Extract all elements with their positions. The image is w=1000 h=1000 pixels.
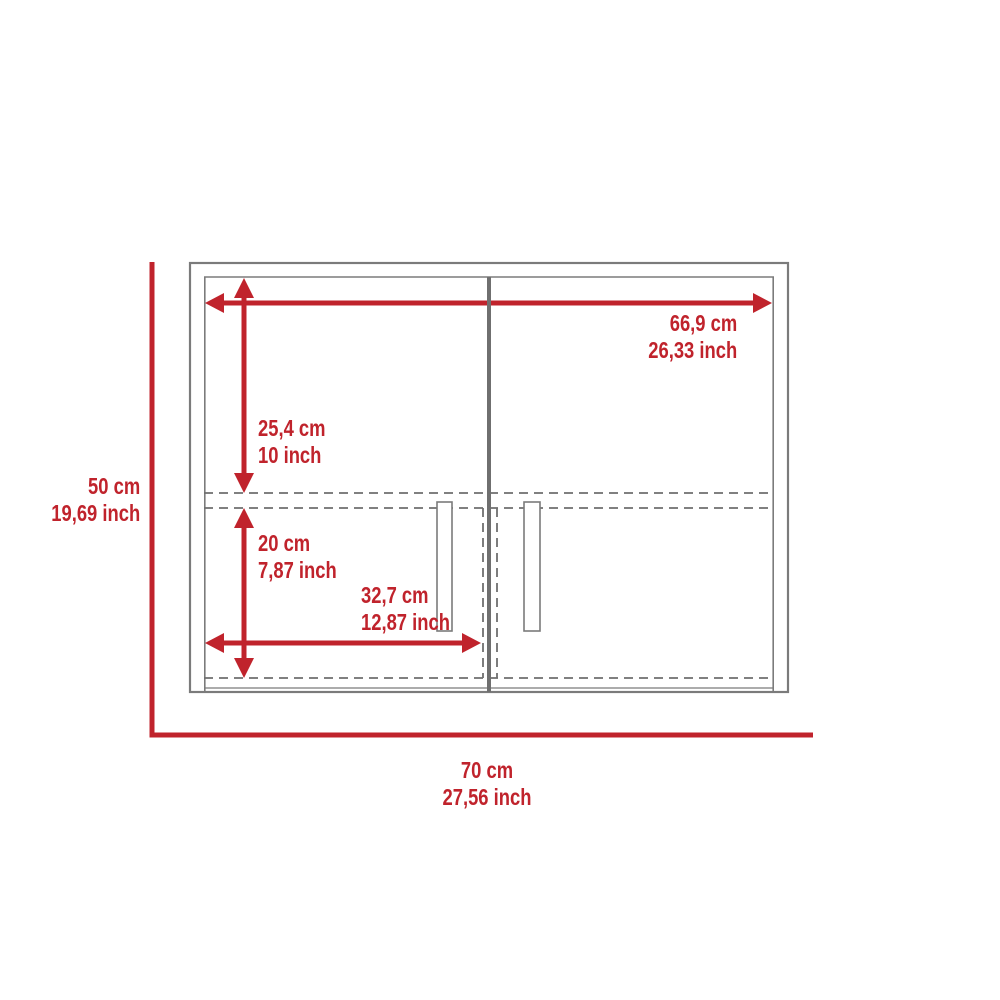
arrowhead-up	[234, 508, 254, 528]
dim-overall-width-inch: 27,56 inch	[367, 784, 607, 811]
dim-interior-width-inch: 26,33 inch	[648, 337, 737, 364]
dim-lower-section-inch: 7,87 inch	[258, 557, 337, 584]
dim-label-overall-width: 70 cm 27,56 inch	[367, 757, 607, 811]
dim-upper-section-inch: 10 inch	[258, 442, 326, 469]
dim-label-overall-height: 50 cm 19,69 inch	[51, 473, 140, 527]
dim-door-width-inch: 12,87 inch	[361, 609, 450, 636]
arrowhead-left	[205, 633, 224, 653]
dim-door-width-cm: 32,7 cm	[361, 582, 450, 609]
dim-label-door-width: 32,7 cm 12,87 inch	[361, 582, 450, 636]
right-door-handle	[524, 502, 540, 631]
dimension-diagram: 66,9 cm 26,33 inch 25,4 cm 10 inch 20 cm…	[0, 0, 1000, 1000]
arrowhead-down	[234, 473, 254, 493]
arrowhead-left	[205, 293, 224, 313]
upper-height-arrow	[234, 278, 254, 493]
dim-overall-width-cm: 70 cm	[367, 757, 607, 784]
arrowhead-right	[753, 293, 772, 313]
center-divider	[487, 277, 491, 692]
arrowhead-right	[462, 633, 481, 653]
cabinet-drawing	[0, 0, 1000, 1000]
dim-label-interior-width: 66,9 cm 26,33 inch	[648, 310, 737, 364]
dim-overall-height-inch: 19,69 inch	[51, 500, 140, 527]
lower-height-arrow	[234, 508, 254, 678]
dim-label-upper-section-height: 25,4 cm 10 inch	[258, 415, 326, 469]
dim-label-lower-section-height: 20 cm 7,87 inch	[258, 530, 337, 584]
dim-upper-section-cm: 25,4 cm	[258, 415, 326, 442]
dim-overall-height-cm: 50 cm	[51, 473, 140, 500]
dim-lower-section-cm: 20 cm	[258, 530, 337, 557]
arrowhead-up	[234, 278, 254, 298]
arrowhead-down	[234, 658, 254, 678]
dim-interior-width-cm: 66,9 cm	[648, 310, 737, 337]
